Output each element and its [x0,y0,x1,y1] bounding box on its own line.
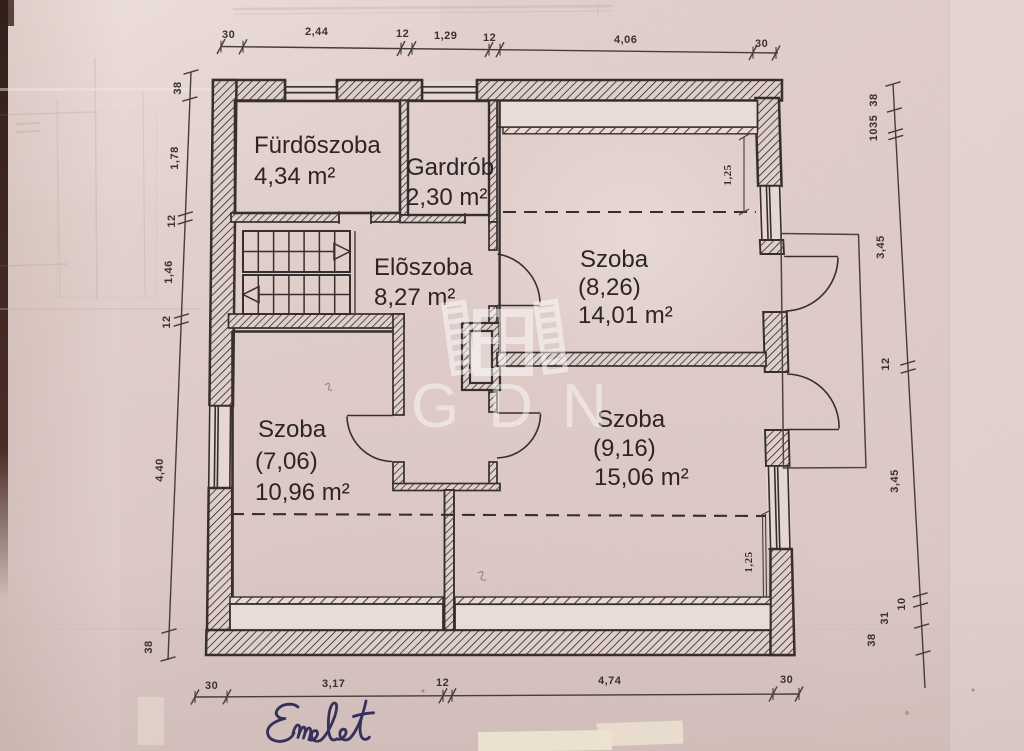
svg-text:30: 30 [222,29,235,41]
svg-text:4,34 m²: 4,34 m² [254,163,335,190]
svg-text:3,45: 3,45 [875,235,887,258]
svg-text:2,30 m²: 2,30 m² [406,184,487,211]
svg-text:10: 10 [896,597,908,610]
svg-text:4,06: 4,06 [614,34,637,46]
svg-text:(8,26): (8,26) [578,274,641,301]
svg-text:Fürdõszoba: Fürdõszoba [254,132,381,159]
svg-text:12: 12 [161,315,173,328]
svg-text:30: 30 [205,680,218,692]
svg-text:(7,06): (7,06) [255,448,318,475]
svg-text:Elõszoba: Elõszoba [374,254,473,281]
svg-text:Szoba: Szoba [258,416,327,443]
svg-text:30: 30 [755,38,768,50]
svg-text:12: 12 [880,357,892,370]
svg-text:1,25: 1,25 [722,164,734,185]
svg-text:Gardrób: Gardrób [406,154,494,181]
svg-text:4,74: 4,74 [598,675,622,687]
svg-text:1,78: 1,78 [169,146,181,169]
svg-text:31: 31 [879,611,891,624]
svg-text:15,06 m²: 15,06 m² [594,464,689,491]
svg-text:38: 38 [143,640,155,653]
svg-text:38: 38 [868,93,880,106]
svg-text:30: 30 [780,674,793,686]
svg-text:GDN: GDN [411,372,636,441]
svg-text:38: 38 [172,81,184,94]
svg-text:12: 12 [166,214,178,227]
svg-text:1,46: 1,46 [163,260,175,283]
svg-text:1035: 1035 [868,115,880,141]
svg-text:1,29: 1,29 [434,30,457,42]
svg-text:14,01 m²: 14,01 m² [578,302,673,329]
svg-text:4,40: 4,40 [154,458,166,481]
svg-text:1,25: 1,25 [743,551,755,572]
svg-text:12: 12 [436,677,449,689]
svg-text:10,96 m²: 10,96 m² [255,479,350,506]
svg-text:3,45: 3,45 [889,469,901,492]
svg-text:2,44: 2,44 [305,26,329,38]
svg-text:12: 12 [396,28,409,40]
svg-text:38: 38 [866,633,878,646]
svg-text:3,17: 3,17 [322,678,345,690]
svg-text:12: 12 [483,32,496,44]
svg-text:Szoba: Szoba [580,246,649,273]
